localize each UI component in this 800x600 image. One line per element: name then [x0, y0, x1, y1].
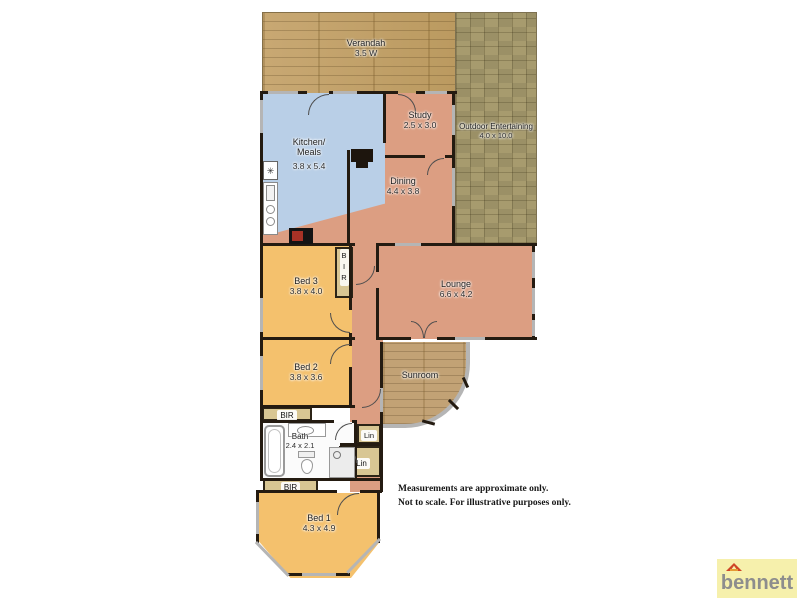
room-label-lounge: Lounge 6.6 x 4.2 [440, 279, 473, 299]
room-label-bed2: Bed 2 3.8 x 3.6 [290, 362, 323, 382]
window [333, 91, 357, 94]
room-label-kitchen: Kitchen/ Meals 3.8 x 5.4 [293, 137, 326, 171]
closet-bir-bed2: BIR [262, 407, 312, 421]
wall [376, 337, 411, 340]
window [395, 243, 421, 246]
disclaimer-text: Measurements are approximate only. Not t… [398, 482, 571, 510]
fireplace-base [356, 162, 368, 168]
closet-lin-upper: Lin [357, 424, 381, 444]
kitchen-counter [263, 182, 278, 235]
wall [260, 337, 355, 340]
window [532, 320, 535, 336]
extractor-box: ✳ [263, 161, 278, 180]
room-sunroom [383, 342, 470, 428]
wall [377, 493, 380, 543]
window [452, 105, 455, 135]
wall [257, 490, 337, 493]
room-label-bath: Bath 2.4 x 2.1 [286, 432, 315, 450]
fireplace-icon [350, 149, 374, 168]
window [455, 337, 485, 340]
room-label-dining: Dining 4.4 x 3.8 [387, 176, 420, 196]
window [425, 91, 447, 94]
agency-logo-text: bennett [717, 572, 797, 595]
closet-label: BIR [340, 249, 349, 286]
wall [340, 443, 383, 446]
closet-label: Lin [361, 430, 377, 441]
wall [349, 245, 352, 310]
room-label-outdoor: Outdoor Entertaining 4.0 x 10.0 [459, 122, 533, 140]
stove-icon [289, 228, 313, 244]
sink-icon [266, 217, 275, 226]
room-label-study: Study 2.5 x 3.0 [404, 110, 437, 130]
window [532, 288, 535, 314]
window [268, 91, 298, 94]
wall [260, 91, 263, 481]
room-label-verandah: Verandah 3.5 W [347, 38, 386, 58]
stove-burner [292, 231, 303, 241]
window [260, 100, 263, 133]
window [260, 356, 263, 390]
window [256, 502, 259, 534]
shower-icon [329, 447, 355, 478]
bathtub-inner [268, 429, 281, 473]
window [260, 298, 263, 332]
bathtub-icon [264, 425, 285, 477]
disclaimer-line2: Not to scale. For illustrative purposes … [398, 496, 571, 510]
wall [376, 288, 379, 340]
wall [383, 91, 386, 143]
wall [260, 478, 383, 481]
toilet-icon [298, 451, 315, 458]
room-label-bed3: Bed 3 3.8 x 4.0 [290, 276, 323, 296]
wall [260, 405, 355, 408]
window [302, 573, 336, 576]
room-label-bed1: Bed 1 4.3 x 4.9 [303, 513, 336, 533]
agency-logo: bennett [717, 559, 797, 598]
wall [437, 337, 537, 340]
floor-plan: BIR BIR BIR Lin Lin [0, 0, 800, 600]
fireplace-body [351, 149, 373, 162]
wall [349, 333, 352, 340]
extractor-icon: ✳ [267, 166, 275, 176]
room-label-sunroom: Sunroom [402, 370, 439, 380]
wall [349, 367, 352, 408]
wall [380, 412, 383, 492]
cooktop-icon [266, 185, 275, 201]
disclaimer-line1: Measurements are approximate only. [398, 482, 571, 496]
shower-head [333, 451, 341, 459]
window [452, 168, 455, 206]
window [532, 252, 535, 278]
sink-icon [266, 205, 275, 214]
wall [376, 245, 379, 272]
wall [385, 155, 425, 158]
wall [380, 342, 383, 388]
roof-underline [730, 569, 738, 571]
